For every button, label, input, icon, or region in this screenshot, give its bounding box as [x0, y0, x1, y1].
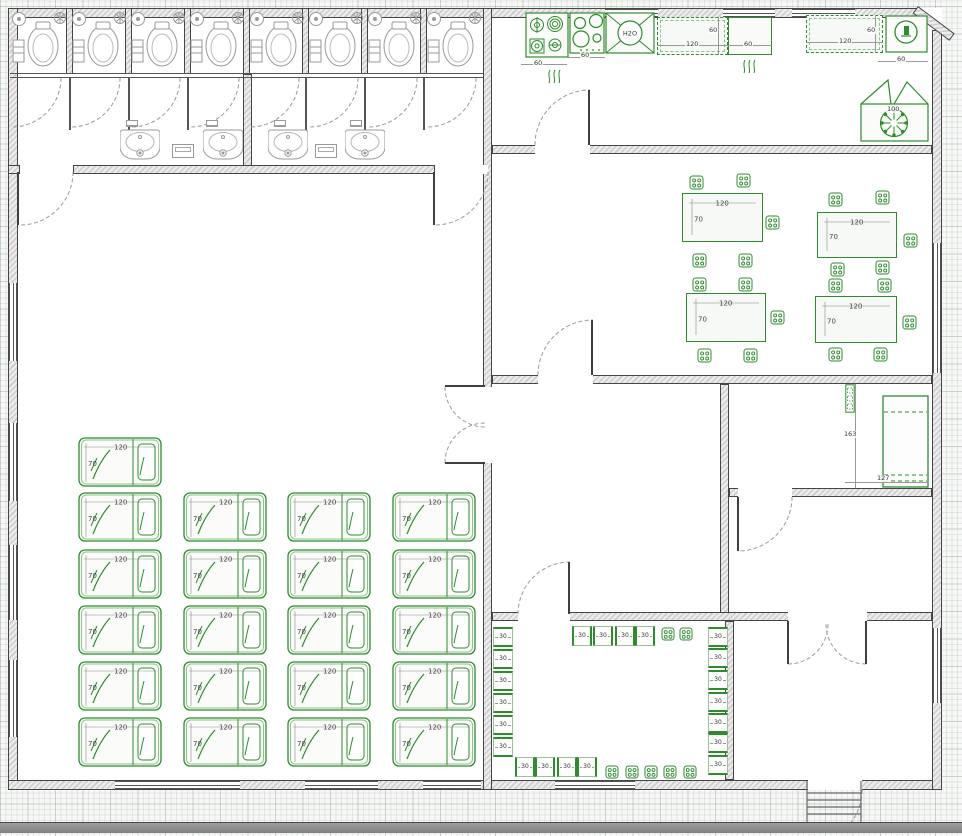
chair-graphic	[644, 765, 658, 779]
door-opening	[483, 387, 492, 463]
chair[interactable]	[828, 192, 843, 207]
dining-table[interactable]: 12070	[686, 293, 766, 342]
bed-graphic: 12070	[287, 549, 371, 599]
toilet-stall[interactable]	[366, 10, 422, 72]
chair[interactable]	[689, 175, 704, 190]
soap-dispenser[interactable]	[315, 144, 337, 158]
chair[interactable]	[738, 277, 753, 292]
door-opening	[538, 375, 593, 384]
svg-text:120: 120	[114, 724, 127, 732]
towel-dispenser[interactable]	[126, 120, 138, 127]
chair[interactable]	[828, 278, 843, 293]
bed[interactable]: 12070	[183, 661, 267, 711]
heat-waves	[546, 68, 564, 84]
svg-text:70: 70	[829, 233, 838, 241]
dimension-line	[875, 15, 876, 53]
chair-graphic	[873, 347, 888, 362]
svg-text:70: 70	[88, 572, 97, 580]
bed[interactable]: 12070	[392, 549, 476, 599]
window	[305, 781, 378, 789]
window	[9, 660, 17, 737]
window	[723, 9, 775, 17]
chair[interactable]	[683, 765, 697, 779]
entrance-stairs	[804, 781, 864, 822]
chair-graphic	[828, 347, 843, 362]
stool[interactable]: 30	[557, 757, 577, 777]
chair[interactable]	[765, 215, 780, 230]
stool-dim-label: 30	[498, 678, 508, 684]
chair-graphic	[738, 253, 753, 268]
beverage-appliance-graphic	[885, 15, 928, 53]
chair-graphic	[830, 262, 845, 277]
toilet-stall[interactable]	[10, 10, 66, 72]
svg-text:70: 70	[827, 318, 836, 326]
towel-dispenser[interactable]	[206, 120, 218, 127]
toilet-stall[interactable]	[307, 10, 363, 72]
wall	[243, 74, 252, 169]
stool-dim-label: 30	[713, 740, 723, 746]
bedside-unit[interactable]	[845, 384, 855, 413]
bed-graphic: 12070	[183, 605, 267, 655]
chair-graphic	[683, 765, 697, 779]
washbasin-graphic	[345, 128, 385, 161]
svg-text:120: 120	[114, 668, 127, 676]
svg-text:120: 120	[323, 556, 336, 564]
bed-graphic: 12070	[392, 549, 476, 599]
bed-graphic: 12070	[183, 661, 267, 711]
bed[interactable]: 12070	[287, 717, 371, 767]
svg-text:120: 120	[219, 724, 232, 732]
chair-graphic	[663, 765, 677, 779]
stool-dim-label: 30	[498, 634, 508, 640]
chair-graphic	[697, 348, 712, 363]
stool[interactable]: 30	[493, 649, 513, 669]
svg-text:70: 70	[193, 515, 202, 523]
chair[interactable]	[770, 310, 785, 325]
stool-dim-label: 30	[713, 655, 723, 661]
stool[interactable]: 30	[593, 626, 613, 646]
svg-text:120: 120	[114, 556, 127, 564]
svg-text:120: 120	[114, 444, 127, 452]
stool[interactable]: 30	[493, 693, 513, 713]
window	[933, 243, 941, 373]
bed-graphic: 12070	[287, 661, 371, 711]
stool[interactable]: 30	[708, 670, 728, 690]
stool[interactable]: 30	[708, 692, 728, 712]
stool-dim-label: 30	[562, 764, 572, 770]
chair[interactable]	[830, 262, 845, 277]
partition-line	[187, 77, 189, 130]
dimension-label: 60	[708, 27, 718, 34]
heat-waves	[741, 58, 759, 74]
kitchen-counter[interactable]	[806, 15, 883, 53]
bed-graphic: 12070	[392, 717, 476, 767]
dimension-label: 60	[866, 27, 876, 34]
chair-graphic	[877, 278, 892, 293]
wall	[8, 165, 20, 174]
dining-table[interactable]: 12070	[817, 212, 897, 258]
oven-unit[interactable]	[728, 17, 772, 55]
dimension-label: 60	[580, 52, 590, 59]
stool-dim-label: 30	[713, 634, 723, 640]
svg-text:70: 70	[88, 460, 97, 468]
stool[interactable]: 30	[493, 627, 513, 647]
stool[interactable]: 30	[577, 757, 597, 777]
svg-text:120: 120	[323, 499, 336, 507]
chair-graphic	[605, 765, 619, 779]
svg-text:120: 120	[849, 303, 862, 311]
stool-dim-label: 30	[713, 762, 723, 768]
chair[interactable]	[644, 765, 658, 779]
chair[interactable]	[692, 253, 707, 268]
partition-line	[305, 77, 307, 130]
dimension-line	[718, 17, 719, 55]
svg-text:70: 70	[193, 572, 202, 580]
stool-dim-label: 30	[498, 744, 508, 750]
kitchen-sink-unit[interactable]: H2O	[605, 12, 655, 54]
dining-table[interactable]: 12070	[682, 193, 763, 242]
svg-text:70: 70	[694, 216, 703, 224]
toilet-stall-graphic	[70, 10, 126, 72]
chair-graphic	[875, 260, 890, 275]
svg-text:120: 120	[114, 499, 127, 507]
bed[interactable]: 12070	[287, 661, 371, 711]
svg-text:70: 70	[88, 515, 97, 523]
toilet-stall[interactable]	[425, 10, 481, 72]
heat-waves-graphic	[546, 68, 564, 84]
heat-waves-graphic	[741, 58, 759, 74]
dimension-label: 60	[896, 56, 906, 63]
stool-dim-label: 30	[540, 764, 550, 770]
bed-graphic: 12070	[78, 717, 162, 767]
toilet-stall[interactable]	[248, 10, 304, 72]
bed-graphic: 12070	[392, 492, 476, 542]
chair[interactable]	[736, 173, 751, 188]
window	[423, 781, 481, 789]
svg-text:H2O: H2O	[623, 30, 637, 38]
washbasin[interactable]	[120, 128, 160, 161]
table-dims: 12070	[816, 297, 898, 344]
svg-text:70: 70	[88, 684, 97, 692]
dimension-line	[845, 482, 929, 483]
chair-graphic	[736, 173, 751, 188]
chair-graphic	[828, 278, 843, 293]
chair[interactable]	[828, 347, 843, 362]
chair-graphic	[902, 315, 917, 330]
chair-graphic	[765, 215, 780, 230]
svg-text:120: 120	[428, 668, 441, 676]
washbasin[interactable]	[268, 128, 308, 161]
bed-graphic: 12070	[392, 661, 476, 711]
bed[interactable]: 12070	[78, 549, 162, 599]
chair[interactable]	[605, 765, 619, 779]
svg-text:120: 120	[323, 724, 336, 732]
bed[interactable]: 12070	[392, 605, 476, 655]
table-dims: 12070	[683, 194, 764, 243]
svg-text:70: 70	[193, 740, 202, 748]
washbasin[interactable]	[345, 128, 385, 161]
stool-dim-label: 30	[713, 699, 723, 705]
svg-text:120: 120	[114, 612, 127, 620]
chair[interactable]	[903, 233, 918, 248]
chair-graphic	[875, 190, 890, 205]
bed-graphic: 12070	[183, 492, 267, 542]
chair[interactable]	[661, 627, 675, 641]
chair-graphic	[692, 253, 707, 268]
window	[115, 781, 240, 789]
toilet-stall[interactable]	[70, 10, 126, 72]
svg-text:120: 120	[219, 556, 232, 564]
bed-graphic: 12070	[78, 661, 162, 711]
washbasin-graphic	[120, 128, 160, 161]
chair[interactable]	[873, 347, 888, 362]
washbasin[interactable]	[203, 128, 243, 161]
bed-graphic: 12070	[287, 717, 371, 767]
kitchen-sink-unit-graphic: H2O	[605, 12, 655, 54]
svg-text:120: 120	[719, 300, 732, 308]
svg-text:70: 70	[297, 740, 306, 748]
bed-graphic: 12070	[183, 717, 267, 767]
door-opening	[788, 612, 867, 621]
dimension-label: 163	[843, 431, 857, 438]
svg-text:70: 70	[402, 684, 411, 692]
chair[interactable]	[743, 348, 758, 363]
dimension-label: 60	[533, 60, 543, 67]
beverage-appliance[interactable]	[885, 15, 928, 53]
svg-text:70: 70	[698, 316, 707, 324]
toilet-stall-graphic	[366, 10, 422, 72]
svg-text:70: 70	[297, 572, 306, 580]
svg-text:70: 70	[88, 628, 97, 636]
svg-text:120: 120	[323, 668, 336, 676]
chair[interactable]	[902, 315, 917, 330]
door-opening	[518, 612, 570, 621]
stool-dim-label: 30	[713, 720, 723, 726]
bed[interactable]: 12070	[392, 717, 476, 767]
partition-line	[10, 77, 483, 78]
dimension-label: 120	[685, 41, 699, 48]
bed[interactable]: 12070	[78, 661, 162, 711]
bed[interactable]: 12070	[183, 492, 267, 542]
bed[interactable]: 12070	[78, 437, 162, 487]
svg-text:120: 120	[428, 499, 441, 507]
svg-text:120: 120	[716, 200, 729, 208]
stool-dim-label: 30	[498, 722, 508, 728]
stool-dim-label: 30	[713, 677, 723, 683]
window	[9, 423, 17, 501]
bed-graphic: 12070	[78, 437, 162, 487]
bed[interactable]: 12070	[183, 717, 267, 767]
chair[interactable]	[692, 277, 707, 292]
stool[interactable]: 30	[708, 713, 728, 733]
door-opening	[435, 165, 488, 174]
bed[interactable]: 12070	[183, 605, 267, 655]
door-opening	[535, 145, 590, 154]
toilet-stall-graphic	[129, 10, 185, 72]
svg-text:70: 70	[88, 740, 97, 748]
window	[9, 545, 17, 620]
bed[interactable]: 12070	[78, 717, 162, 767]
stool-dim-label: 30	[498, 656, 508, 662]
door-opening	[738, 488, 792, 497]
toilet-stall-graphic	[425, 10, 481, 72]
chair-graphic	[828, 192, 843, 207]
bed[interactable]: 12070	[287, 492, 371, 542]
svg-text:120: 120	[428, 556, 441, 564]
svg-text:70: 70	[297, 515, 306, 523]
chair-graphic	[903, 233, 918, 248]
table-dims: 12070	[818, 213, 898, 259]
cooktop[interactable]	[569, 12, 605, 54]
table-dims: 12070	[687, 294, 767, 343]
window	[933, 628, 941, 703]
partition-line	[10, 73, 483, 74]
soap-dispenser[interactable]	[172, 144, 194, 158]
chair-graphic	[679, 627, 693, 641]
chair[interactable]	[697, 348, 712, 363]
svg-text:120: 120	[323, 612, 336, 620]
partition-line	[69, 77, 71, 130]
bed[interactable]: 12070	[392, 492, 476, 542]
dimension-label: 60	[743, 41, 753, 48]
cooktop-graphic	[569, 12, 605, 54]
toilet-stall-graphic	[188, 10, 244, 72]
stool[interactable]: 30	[615, 626, 635, 646]
stool-dim-label: 30	[498, 700, 508, 706]
bed[interactable]: 12070	[392, 661, 476, 711]
door-opening	[20, 165, 73, 174]
svg-text:120: 120	[428, 612, 441, 620]
bedside-unit-graphic	[845, 384, 855, 413]
dimension-label: 120	[838, 38, 852, 45]
stool[interactable]: 30	[493, 715, 513, 735]
svg-text:120: 120	[850, 219, 863, 227]
svg-text:70: 70	[297, 628, 306, 636]
stool[interactable]: 30	[493, 671, 513, 691]
wall	[720, 384, 729, 621]
chair[interactable]	[625, 765, 639, 779]
stool[interactable]: 30	[708, 648, 728, 668]
stool-dim-label: 30	[577, 633, 587, 639]
towel-dispenser[interactable]	[350, 120, 362, 127]
chair-graphic	[625, 765, 639, 779]
bed-graphic: 12070	[392, 605, 476, 655]
svg-text:70: 70	[297, 684, 306, 692]
toilet-stall-graphic	[307, 10, 363, 72]
dining-table[interactable]: 12070	[815, 296, 897, 343]
chair[interactable]	[738, 253, 753, 268]
gas-stove[interactable]	[525, 12, 569, 58]
bed-graphic: 12070	[287, 492, 371, 542]
chair-graphic	[770, 310, 785, 325]
window	[555, 781, 635, 789]
partition-line	[364, 77, 366, 130]
bed-graphic: 12070	[78, 605, 162, 655]
bed[interactable]: 12070	[287, 549, 371, 599]
chair-graphic	[689, 175, 704, 190]
stool[interactable]: 30	[515, 757, 535, 777]
window	[9, 283, 17, 361]
svg-text:70: 70	[402, 628, 411, 636]
bed-graphic: 12070	[78, 492, 162, 542]
dimension-line	[521, 64, 567, 65]
svg-text:120: 120	[219, 499, 232, 507]
stool-dim-label: 30	[520, 764, 530, 770]
stool-dim-label: 30	[620, 633, 630, 639]
svg-text:120: 120	[428, 724, 441, 732]
chair[interactable]	[679, 627, 693, 641]
stool[interactable]: 30	[708, 627, 728, 647]
toilet-stall[interactable]	[188, 10, 244, 72]
svg-text:70: 70	[402, 572, 411, 580]
chair-graphic	[738, 277, 753, 292]
svg-text:70: 70	[402, 740, 411, 748]
bed-graphic: 12070	[287, 605, 371, 655]
chair-graphic	[743, 348, 758, 363]
stool-dim-label: 30	[582, 764, 592, 770]
chair[interactable]	[877, 278, 892, 293]
entrance-stairs-graphic	[804, 781, 864, 822]
toilet-stall-graphic	[10, 10, 66, 72]
chair-graphic	[692, 277, 707, 292]
chair-graphic	[661, 627, 675, 641]
bed[interactable]: 12070	[78, 605, 162, 655]
washbasin-graphic	[268, 128, 308, 161]
stool[interactable]: 30	[708, 755, 728, 775]
towel-dispenser[interactable]	[274, 120, 286, 127]
stool[interactable]: 30	[708, 733, 728, 753]
bed[interactable]: 12070	[183, 549, 267, 599]
bed[interactable]: 12070	[78, 492, 162, 542]
bed-graphic: 12070	[183, 549, 267, 599]
chair[interactable]	[663, 765, 677, 779]
svg-text:120: 120	[219, 668, 232, 676]
bed-graphic: 12070	[78, 549, 162, 599]
toilet-stall-graphic	[248, 10, 304, 72]
stool[interactable]: 30	[493, 737, 513, 757]
gas-stove-graphic	[525, 12, 569, 58]
dimension-label: 127	[876, 475, 890, 482]
partition-line	[423, 77, 425, 130]
svg-text:70: 70	[193, 628, 202, 636]
stool[interactable]: 30	[635, 626, 655, 646]
toilet-stall[interactable]	[129, 10, 185, 72]
bottom-bar	[0, 822, 962, 833]
stool-dim-label: 30	[598, 633, 608, 639]
chair[interactable]	[875, 190, 890, 205]
washbasin-graphic	[203, 128, 243, 161]
svg-text:70: 70	[193, 684, 202, 692]
dimension-label: 100	[886, 106, 900, 113]
chair[interactable]	[875, 260, 890, 275]
stool[interactable]: 30	[535, 757, 555, 777]
stool-dim-label: 30	[640, 633, 650, 639]
svg-text:120: 120	[219, 612, 232, 620]
wall	[73, 165, 435, 174]
counter-inner-line	[809, 18, 880, 50]
stool[interactable]: 30	[572, 626, 592, 646]
bed[interactable]: 12070	[287, 605, 371, 655]
svg-text:70: 70	[402, 515, 411, 523]
floorplan-canvas: 1207012070120701207012070120701207012070…	[0, 0, 962, 832]
